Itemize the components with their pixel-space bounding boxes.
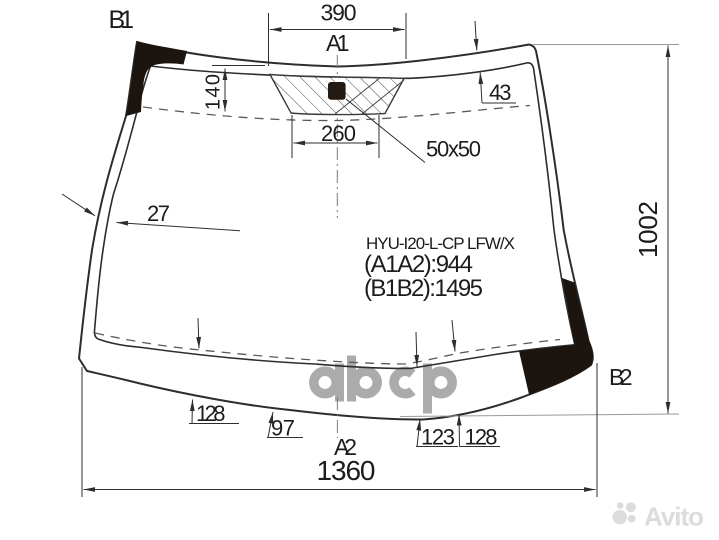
svg-text:(A1A2):944: (A1A2):944 <box>364 251 473 278</box>
svg-text:43: 43 <box>489 80 512 105</box>
svg-text:(B1B2):1495: (B1B2):1495 <box>364 275 483 302</box>
svg-text:123: 123 <box>421 425 455 450</box>
svg-text:Avito: Avito <box>644 502 704 532</box>
svg-text:B1: B1 <box>109 6 135 34</box>
svg-text:A1: A1 <box>326 30 350 56</box>
svg-text:1002: 1002 <box>633 201 663 258</box>
svg-text:140: 140 <box>203 74 225 110</box>
svg-text:390: 390 <box>321 0 357 26</box>
svg-text:260: 260 <box>321 121 356 146</box>
svg-text:128: 128 <box>196 401 226 426</box>
svg-text:97: 97 <box>271 416 295 441</box>
svg-text:A2: A2 <box>334 434 357 460</box>
svg-text:50x50: 50x50 <box>426 137 481 162</box>
svg-text:B2: B2 <box>609 364 633 390</box>
svg-text:27: 27 <box>147 201 170 226</box>
svg-text:128: 128 <box>465 425 498 450</box>
